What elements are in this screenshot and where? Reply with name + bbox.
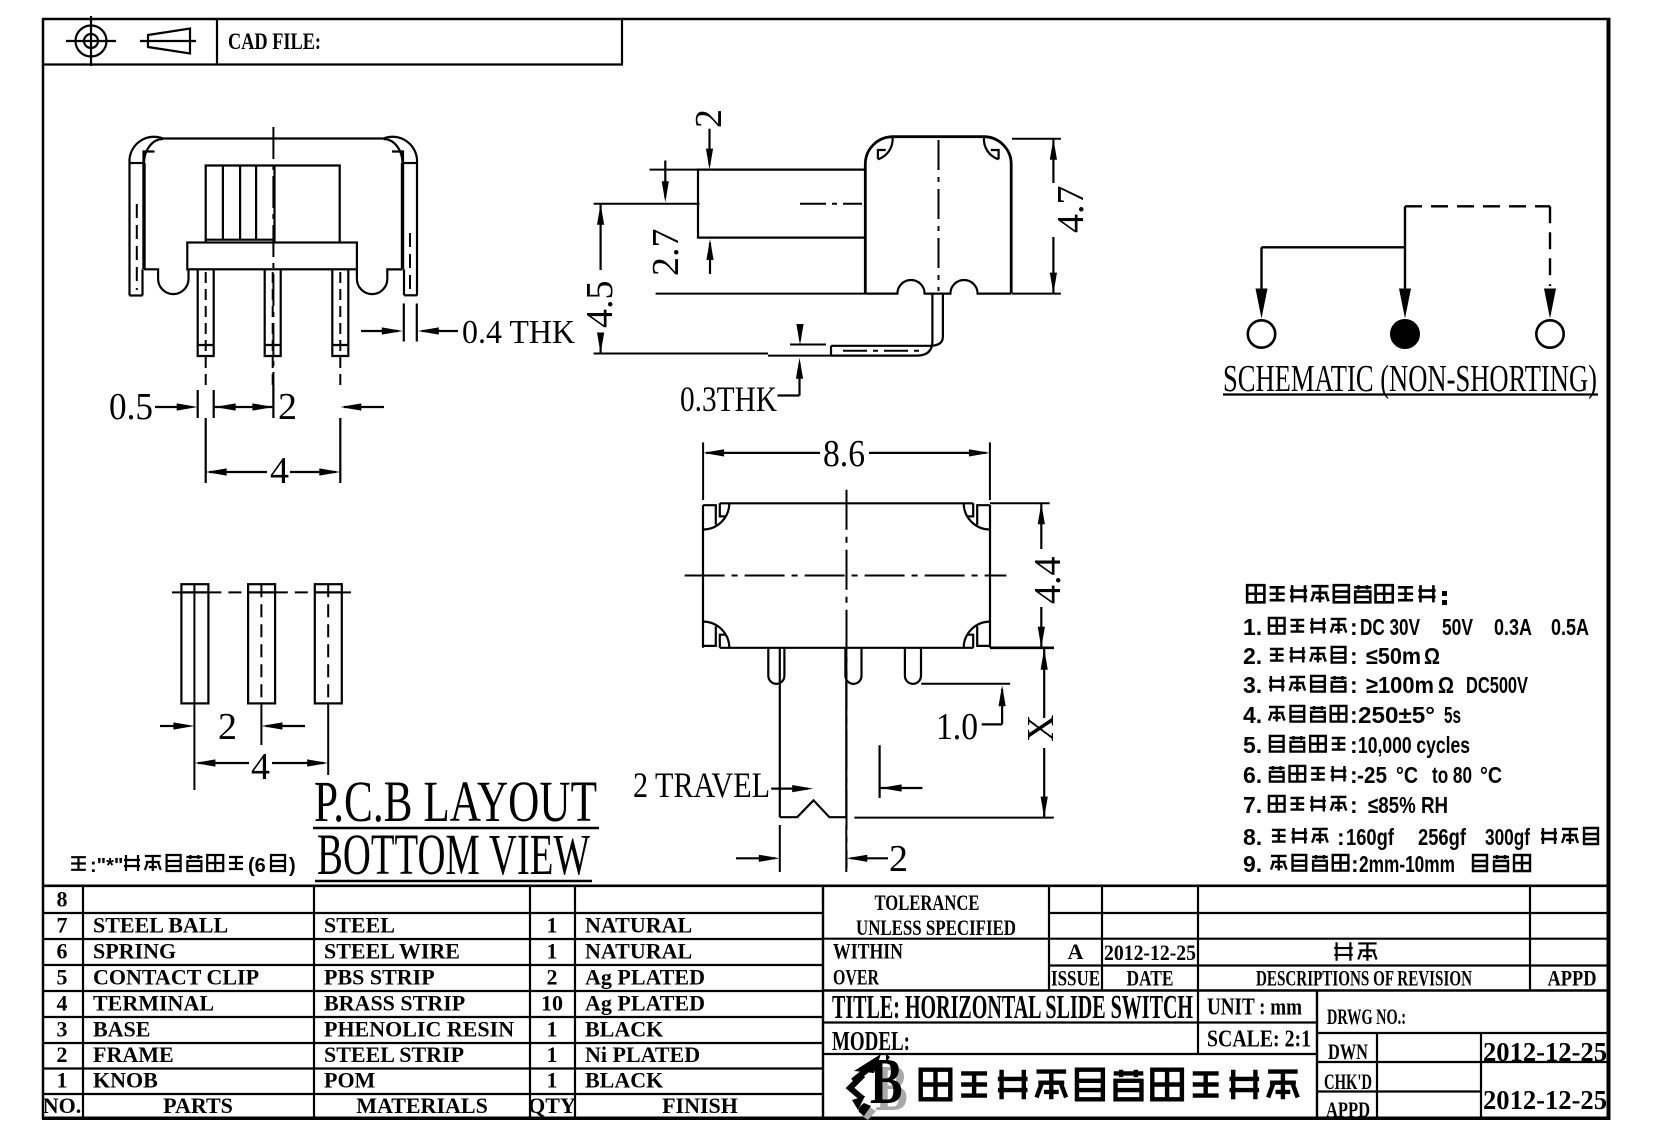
svg-text:SPRING: SPRING	[93, 939, 176, 964]
svg-text:6: 6	[57, 939, 68, 964]
svg-text:0.3A: 0.3A	[1494, 614, 1532, 640]
svg-text:(6: (6	[248, 855, 266, 877]
svg-text:4: 4	[57, 991, 68, 1016]
svg-text:NATURAL: NATURAL	[585, 913, 692, 938]
svg-text:WITHIN: WITHIN	[833, 939, 903, 964]
svg-text:BLACK: BLACK	[585, 1068, 663, 1093]
svg-text:to 80: to 80	[1432, 762, 1472, 788]
svg-text:OVER: OVER	[833, 965, 880, 990]
svg-text::: :	[1350, 643, 1358, 669]
svg-text:0.4 THK: 0.4 THK	[462, 314, 575, 351]
svg-text:≤50m: ≤50m	[1366, 643, 1421, 669]
svg-text:1: 1	[547, 1017, 558, 1042]
svg-text:2012-12-25: 2012-12-25	[1483, 1085, 1607, 1115]
svg-text:0.5: 0.5	[109, 386, 153, 428]
svg-text:DRWG NO.:: DRWG NO.:	[1327, 1004, 1406, 1029]
svg-text:≥100m: ≥100m	[1366, 672, 1434, 698]
svg-text:4.5: 4.5	[579, 281, 621, 329]
svg-text:10,000 cycles: 10,000 cycles	[1358, 732, 1470, 758]
svg-text:6.: 6.	[1243, 762, 1262, 788]
svg-text:TERMINAL: TERMINAL	[93, 991, 214, 1016]
svg-text:7: 7	[57, 913, 68, 938]
svg-text:256gf: 256gf	[1418, 824, 1466, 850]
svg-text:KNOB: KNOB	[93, 1068, 158, 1093]
svg-text:CAD FILE:: CAD FILE:	[228, 29, 321, 54]
svg-text:Ω: Ω	[1424, 643, 1440, 669]
svg-text:DC500V: DC500V	[1466, 672, 1528, 698]
svg-text::: :	[1350, 792, 1358, 818]
svg-text:POM: POM	[324, 1068, 376, 1093]
svg-text::: :	[1350, 702, 1358, 728]
svg-text:BOTTOM VIEW: BOTTOM VIEW	[317, 822, 590, 887]
svg-text:°C: °C	[1480, 762, 1502, 788]
svg-text:°C: °C	[1396, 762, 1418, 788]
svg-text:50V: 50V	[1442, 614, 1473, 640]
svg-text:STEEL STRIP: STEEL STRIP	[324, 1042, 464, 1067]
svg-text:NATURAL: NATURAL	[585, 939, 692, 964]
svg-text:PBS STRIP: PBS STRIP	[324, 965, 435, 990]
svg-text:A: A	[1068, 939, 1084, 964]
svg-text:2: 2	[218, 706, 237, 748]
svg-text:): )	[289, 855, 296, 877]
svg-text:≤85% RH: ≤85% RH	[1368, 792, 1448, 818]
svg-text:STEEL BALL: STEEL BALL	[93, 913, 228, 938]
svg-text::: :	[1350, 672, 1358, 698]
svg-text:MATERIALS: MATERIALS	[356, 1093, 488, 1118]
svg-text:TOLERANCE: TOLERANCE	[875, 890, 980, 915]
svg-text:NO.: NO.	[43, 1093, 82, 1118]
svg-text:1: 1	[547, 913, 558, 938]
svg-text:DWN: DWN	[1328, 1039, 1368, 1064]
svg-text:3: 3	[57, 1017, 68, 1042]
svg-text:1.: 1.	[1243, 614, 1262, 640]
svg-text:CONTACT CLIP: CONTACT CLIP	[93, 965, 259, 990]
svg-text:Ag PLATED: Ag PLATED	[585, 991, 705, 1016]
svg-text:1: 1	[57, 1068, 68, 1093]
svg-text:2: 2	[57, 1042, 68, 1067]
svg-text:2: 2	[547, 965, 558, 990]
svg-text:BLACK: BLACK	[585, 1017, 663, 1042]
svg-text:5.: 5.	[1243, 732, 1262, 758]
svg-text:8.: 8.	[1243, 824, 1262, 850]
svg-text:8: 8	[57, 887, 68, 912]
svg-text:2: 2	[889, 838, 908, 880]
svg-text:2: 2	[278, 386, 297, 428]
svg-text:CHK'D: CHK'D	[1324, 1069, 1372, 1094]
svg-text:3.: 3.	[1243, 672, 1262, 698]
svg-text:Ag PLATED: Ag PLATED	[585, 965, 705, 990]
svg-text:2012-12-25: 2012-12-25	[1483, 1037, 1607, 1067]
svg-text:5s: 5s	[1444, 702, 1461, 728]
svg-text:BASE: BASE	[93, 1017, 150, 1042]
svg-text:7.: 7.	[1243, 792, 1262, 818]
svg-text:DC 30V: DC 30V	[1360, 614, 1420, 640]
svg-text:QTY: QTY	[528, 1093, 576, 1118]
svg-text:1.0: 1.0	[936, 706, 978, 748]
svg-text:PARTS: PARTS	[163, 1093, 233, 1118]
svg-text:8.6: 8.6	[823, 433, 865, 475]
svg-text::: :	[1350, 732, 1358, 758]
svg-text:DESCRIPTIONS OF REVISION: DESCRIPTIONS OF REVISION	[1256, 966, 1472, 991]
svg-text:2 TRAVEL: 2 TRAVEL	[633, 765, 770, 805]
svg-text:250±5°: 250±5°	[1358, 702, 1435, 728]
svg-text:TITLE: HORIZONTAL SLIDE SWI: TITLE: HORIZONTAL SLIDE SWITCH	[832, 989, 1193, 1026]
svg-text:BRASS STRIP: BRASS STRIP	[324, 991, 465, 1016]
svg-text:4.4: 4.4	[1027, 557, 1069, 605]
svg-text:DATE: DATE	[1127, 966, 1174, 991]
svg-text:160gf: 160gf	[1346, 824, 1394, 850]
svg-text:0.5A: 0.5A	[1551, 614, 1589, 640]
svg-text:ISSUE: ISSUE	[1051, 966, 1100, 991]
svg-text:2: 2	[688, 109, 730, 128]
svg-text:5: 5	[57, 965, 68, 990]
svg-text:Ni PLATED: Ni PLATED	[585, 1042, 700, 1067]
svg-text:APPD: APPD	[1548, 966, 1597, 991]
svg-text::: :	[1350, 614, 1358, 640]
svg-text:1: 1	[547, 1042, 558, 1067]
svg-text:SCALE: 2:1: SCALE: 2:1	[1207, 1027, 1311, 1053]
svg-text:FRAME: FRAME	[93, 1042, 174, 1067]
svg-text:APPD: APPD	[1326, 1097, 1370, 1122]
svg-text:4.7: 4.7	[1050, 186, 1092, 234]
svg-text:9.: 9.	[1243, 851, 1262, 877]
svg-text:FINISH: FINISH	[662, 1093, 738, 1118]
svg-text:STEEL WIRE: STEEL WIRE	[324, 939, 460, 964]
svg-text:2.7: 2.7	[645, 229, 687, 277]
svg-text:2mm-10mm: 2mm-10mm	[1359, 851, 1455, 877]
svg-text:300gf: 300gf	[1485, 824, 1530, 850]
svg-text:4: 4	[251, 746, 270, 788]
svg-text:4: 4	[270, 450, 289, 492]
svg-text:PHENOLIC RESIN: PHENOLIC RESIN	[324, 1017, 514, 1042]
svg-text:UNLESS SPECIFIED: UNLESS SPECIFIED	[856, 915, 1016, 940]
svg-text:1: 1	[547, 939, 558, 964]
svg-text:10: 10	[541, 991, 563, 1016]
svg-text:STEEL: STEEL	[324, 913, 395, 938]
svg-text:-25: -25	[1357, 762, 1387, 788]
svg-text:X: X	[1020, 715, 1062, 742]
svg-text:4.: 4.	[1243, 702, 1262, 728]
svg-text::: :	[1351, 851, 1359, 877]
svg-text:Ω: Ω	[1438, 672, 1454, 698]
svg-text:2.: 2.	[1243, 643, 1262, 669]
svg-text:2012-12-25: 2012-12-25	[1104, 940, 1196, 965]
svg-text:0.3THK: 0.3THK	[680, 379, 777, 419]
svg-text::: :	[1337, 824, 1345, 850]
svg-text:UNIT : mm: UNIT : mm	[1207, 995, 1302, 1021]
svg-text::"*": :"*"	[90, 855, 123, 877]
svg-text:1: 1	[547, 1068, 558, 1093]
